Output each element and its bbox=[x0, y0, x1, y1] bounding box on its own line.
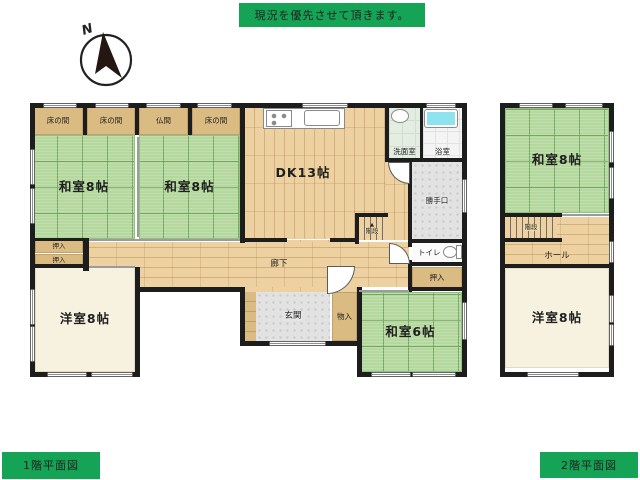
toilet-icon bbox=[443, 246, 457, 258]
wall bbox=[420, 107, 423, 159]
window bbox=[566, 104, 602, 107]
room-label: 和室8帖 bbox=[59, 181, 109, 194]
room-label: 物入 bbox=[337, 313, 352, 321]
window bbox=[31, 327, 34, 361]
wall bbox=[135, 287, 245, 292]
wall bbox=[30, 264, 89, 268]
wall bbox=[330, 238, 357, 242]
room-label: 床の間 bbox=[100, 117, 123, 125]
floor1-caption-text: 1階平面図 bbox=[23, 460, 79, 471]
room-label: 洗面室 bbox=[393, 148, 416, 156]
wall bbox=[412, 262, 462, 266]
room-tokonoma-2: 床の間 bbox=[87, 107, 135, 135]
room-yoshitsu-1f: 洋室8帖 bbox=[35, 267, 135, 372]
room-label: 和室6帖 bbox=[385, 326, 435, 339]
wall bbox=[240, 103, 245, 243]
floor2-caption: 2階平面図 bbox=[540, 452, 638, 478]
wall bbox=[500, 238, 562, 242]
wall bbox=[357, 287, 362, 377]
room-tokonoma-3: 床の間 bbox=[192, 107, 240, 135]
entrance-door bbox=[270, 342, 325, 345]
room-monoire: 物入 bbox=[332, 292, 357, 341]
wall bbox=[408, 260, 412, 292]
wall bbox=[135, 107, 139, 135]
floor-plan-page: 現況を優先させて頂きます。 N 床の間 床の間 仏間 床の間 和室8帖 和室8帖… bbox=[0, 0, 640, 480]
wall bbox=[500, 213, 562, 217]
window bbox=[44, 104, 76, 107]
window bbox=[610, 168, 613, 198]
kitchen-sink-icon bbox=[304, 110, 340, 126]
window bbox=[610, 242, 613, 262]
stove-icon bbox=[266, 110, 292, 127]
window bbox=[31, 150, 34, 184]
window bbox=[610, 132, 613, 162]
window bbox=[610, 325, 613, 345]
room-label: 押入 bbox=[430, 274, 445, 282]
room-yoshitsu-2f: 洋室8帖 bbox=[505, 268, 609, 368]
window bbox=[463, 303, 466, 339]
room-label: 廊下 bbox=[270, 260, 287, 269]
room-label: 階段 bbox=[524, 224, 539, 231]
wall bbox=[500, 264, 614, 268]
wall bbox=[135, 267, 140, 377]
room-label: 浴室 bbox=[435, 148, 450, 156]
room-oshiire-right: 押入 bbox=[412, 267, 462, 288]
window bbox=[96, 104, 128, 107]
sliding-door bbox=[89, 266, 135, 268]
room-washitsu-2f: 和室8帖 bbox=[505, 108, 609, 213]
room-label: ホール bbox=[544, 252, 570, 261]
floor2-caption-text: 2階平面図 bbox=[561, 460, 617, 471]
back-door bbox=[463, 180, 466, 212]
window bbox=[372, 373, 410, 376]
room-genkan: 玄関 bbox=[256, 292, 330, 341]
sliding-door bbox=[359, 290, 409, 292]
room-label: 仏間 bbox=[156, 117, 171, 125]
washbasin-icon bbox=[391, 109, 409, 123]
floor1-caption: 1階平面図 bbox=[2, 452, 100, 479]
wall bbox=[412, 287, 467, 291]
window bbox=[31, 189, 34, 223]
window bbox=[198, 104, 231, 107]
room-label: DK13帖 bbox=[276, 167, 331, 180]
compass-icon: N bbox=[70, 16, 140, 90]
window bbox=[48, 373, 86, 376]
notice-banner-text: 現況を優先させて頂きます。 bbox=[255, 10, 410, 21]
room-washitsu-6: 和室6帖 bbox=[359, 292, 462, 372]
room-butsuma: 仏間 bbox=[139, 107, 188, 135]
room-label: 洋室8帖 bbox=[532, 312, 582, 325]
window bbox=[31, 290, 34, 324]
wall bbox=[188, 107, 192, 135]
window bbox=[427, 104, 455, 107]
room-label: 玄関 bbox=[283, 312, 302, 321]
wall bbox=[83, 107, 87, 135]
room-oshiire-left-1: 押入 bbox=[35, 240, 83, 253]
room-label: 勝手口 bbox=[425, 197, 450, 205]
window bbox=[413, 373, 455, 376]
room-label: 洋室8帖 bbox=[60, 313, 110, 326]
sliding-door bbox=[562, 214, 609, 216]
room-label: 押入 bbox=[53, 257, 66, 264]
room-label: 押入 bbox=[53, 243, 66, 250]
room-label: 階段 bbox=[365, 228, 380, 235]
room-washitsu-8-a: 和室8帖 bbox=[33, 135, 135, 239]
sliding-door bbox=[137, 137, 139, 237]
window bbox=[610, 296, 613, 322]
window bbox=[147, 104, 180, 107]
wall bbox=[412, 239, 462, 243]
room-label: 和室8帖 bbox=[164, 181, 214, 194]
room-tokonoma-1: 床の間 bbox=[33, 107, 83, 135]
notice-banner: 現況を優先させて頂きます。 bbox=[239, 3, 425, 27]
window bbox=[528, 373, 578, 376]
wall bbox=[243, 238, 287, 242]
room-label: 床の間 bbox=[205, 117, 228, 125]
wall bbox=[385, 103, 389, 162]
room-label: トイレ bbox=[418, 249, 441, 257]
wall bbox=[355, 213, 388, 217]
stairs-1f: ▲ 階段 bbox=[359, 217, 385, 240]
compass-north-label: N bbox=[80, 21, 95, 39]
room-washitsu-8-b: 和室8帖 bbox=[139, 135, 240, 239]
room-katteguchi: 勝手口 bbox=[412, 162, 462, 240]
genkan-step bbox=[245, 292, 256, 341]
window bbox=[92, 373, 132, 376]
room-label: 和室8帖 bbox=[532, 154, 582, 167]
wall bbox=[240, 287, 245, 346]
wall bbox=[408, 239, 412, 247]
room-label: 床の間 bbox=[47, 117, 70, 125]
window bbox=[303, 104, 347, 107]
stairs-2f: 階段 bbox=[505, 217, 557, 238]
wall bbox=[30, 238, 89, 241]
bathtub-icon bbox=[425, 110, 457, 127]
sliding-door bbox=[89, 239, 240, 241]
window bbox=[520, 104, 552, 107]
